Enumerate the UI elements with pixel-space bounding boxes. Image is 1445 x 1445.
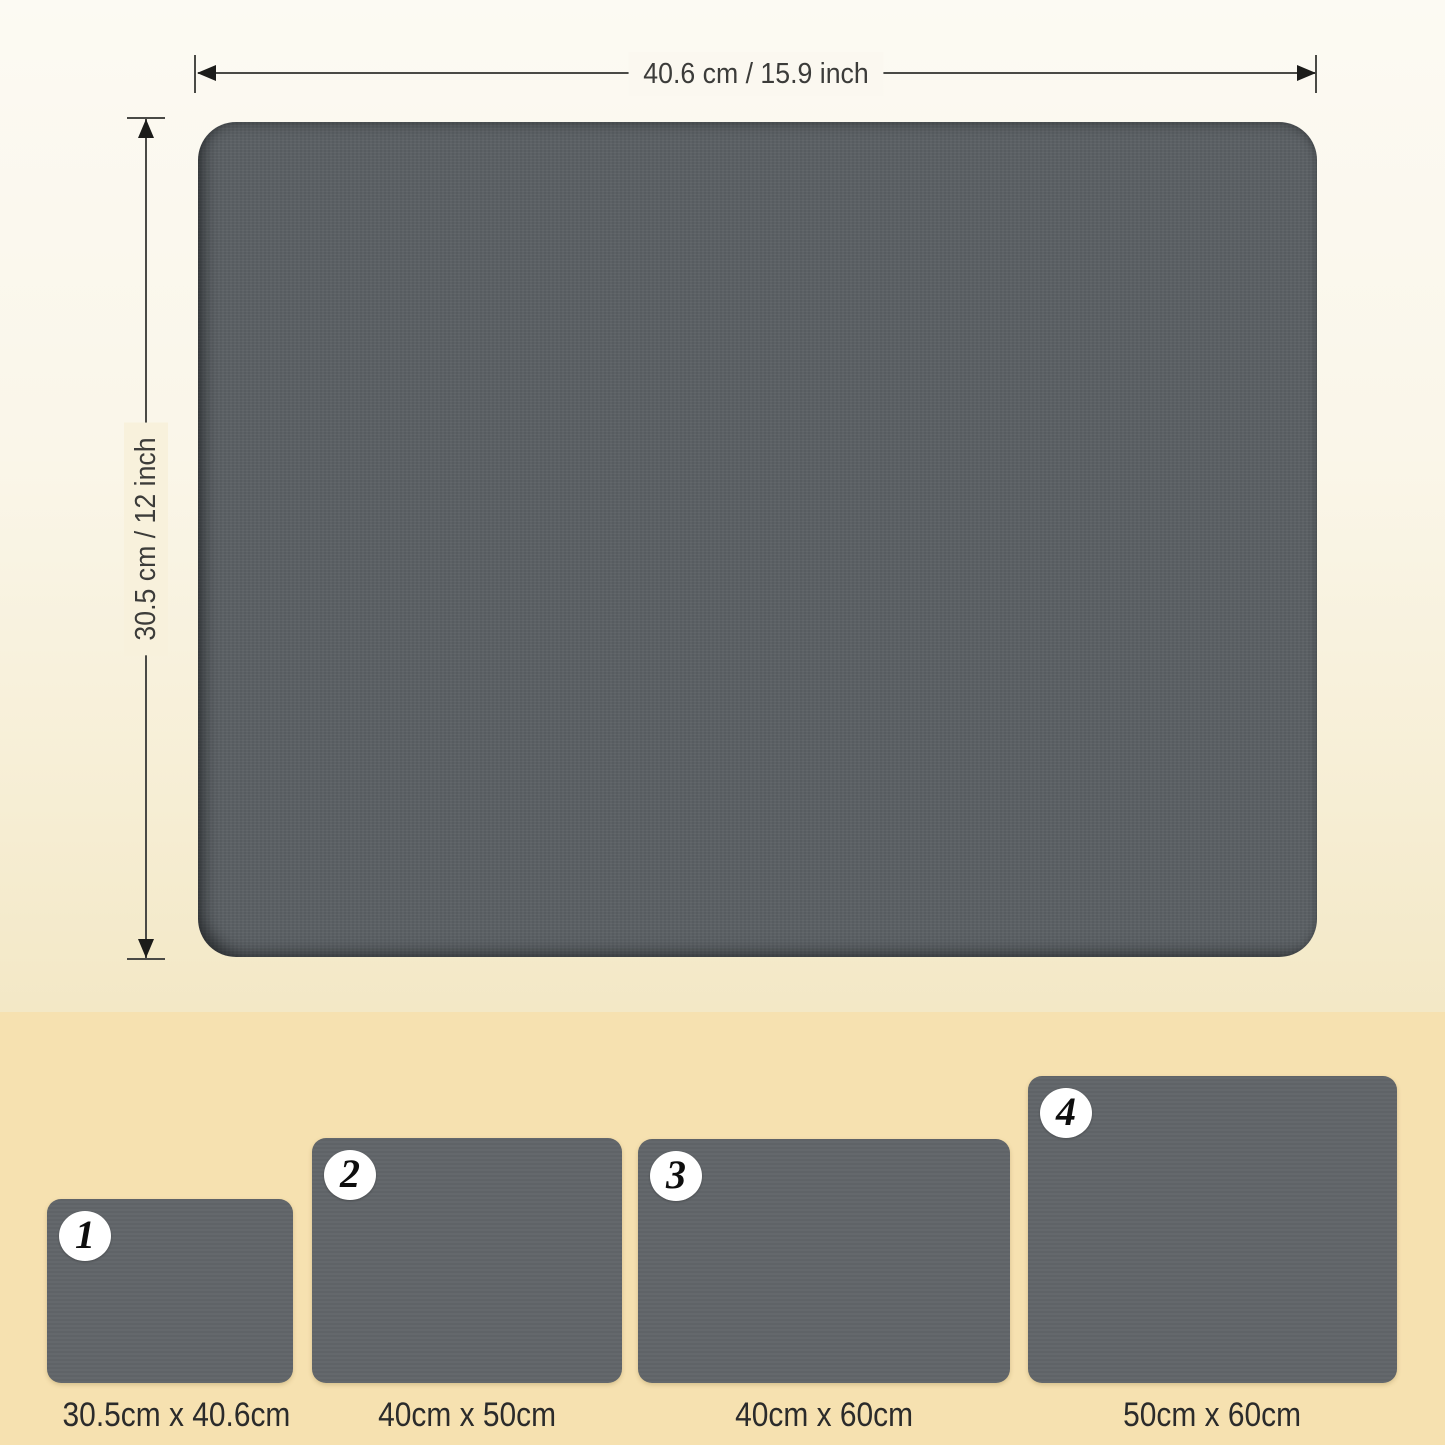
size-number-4: 4 <box>1056 1092 1076 1132</box>
size-number-1: 1 <box>75 1215 95 1255</box>
arrow-up-icon <box>138 119 154 138</box>
size-label-text-4: 50cm x 60cm <box>1124 1396 1302 1435</box>
size-label-text-3: 40cm x 60cm <box>735 1396 913 1435</box>
width-dimension-label: 40.6 cm / 15.9 inch <box>629 52 884 96</box>
size-label-1: 30.5cm x 40.6cm <box>47 1396 293 1435</box>
size-badge-4: 4 <box>1040 1088 1092 1138</box>
size-card-2: 2 <box>312 1138 622 1383</box>
arrow-right-icon <box>1297 65 1316 81</box>
arrow-left-icon <box>197 65 216 81</box>
size-number-2: 2 <box>340 1154 360 1194</box>
size-card-3: 3 <box>638 1139 1010 1383</box>
size-badge-1: 1 <box>59 1211 111 1261</box>
mat-dimension-section: 40.6 cm / 15.9 inch 30.5 cm / 12 inch <box>0 0 1445 1012</box>
width-left-tick <box>194 55 196 93</box>
size-label-text-1: 30.5cm x 40.6cm <box>63 1396 291 1435</box>
size-number-3: 3 <box>666 1155 686 1195</box>
size-label-3: 40cm x 60cm <box>638 1396 1010 1435</box>
arrow-down-icon <box>138 939 154 958</box>
size-label-text-2: 40cm x 50cm <box>378 1396 556 1435</box>
size-card-1: 1 <box>47 1199 293 1383</box>
height-bottom-tick <box>127 958 165 960</box>
product-mat-image <box>198 122 1317 957</box>
size-card-4: 4 <box>1028 1076 1397 1383</box>
size-label-4: 50cm x 60cm <box>1028 1396 1397 1435</box>
size-badge-2: 2 <box>324 1150 376 1200</box>
height-dimension-label: 30.5 cm / 12 inch <box>124 423 168 656</box>
size-label-2: 40cm x 50cm <box>312 1396 622 1435</box>
size-badge-3: 3 <box>650 1151 702 1201</box>
product-infographic: 40.6 cm / 15.9 inch 30.5 cm / 12 inch 4 … <box>0 0 1445 1445</box>
